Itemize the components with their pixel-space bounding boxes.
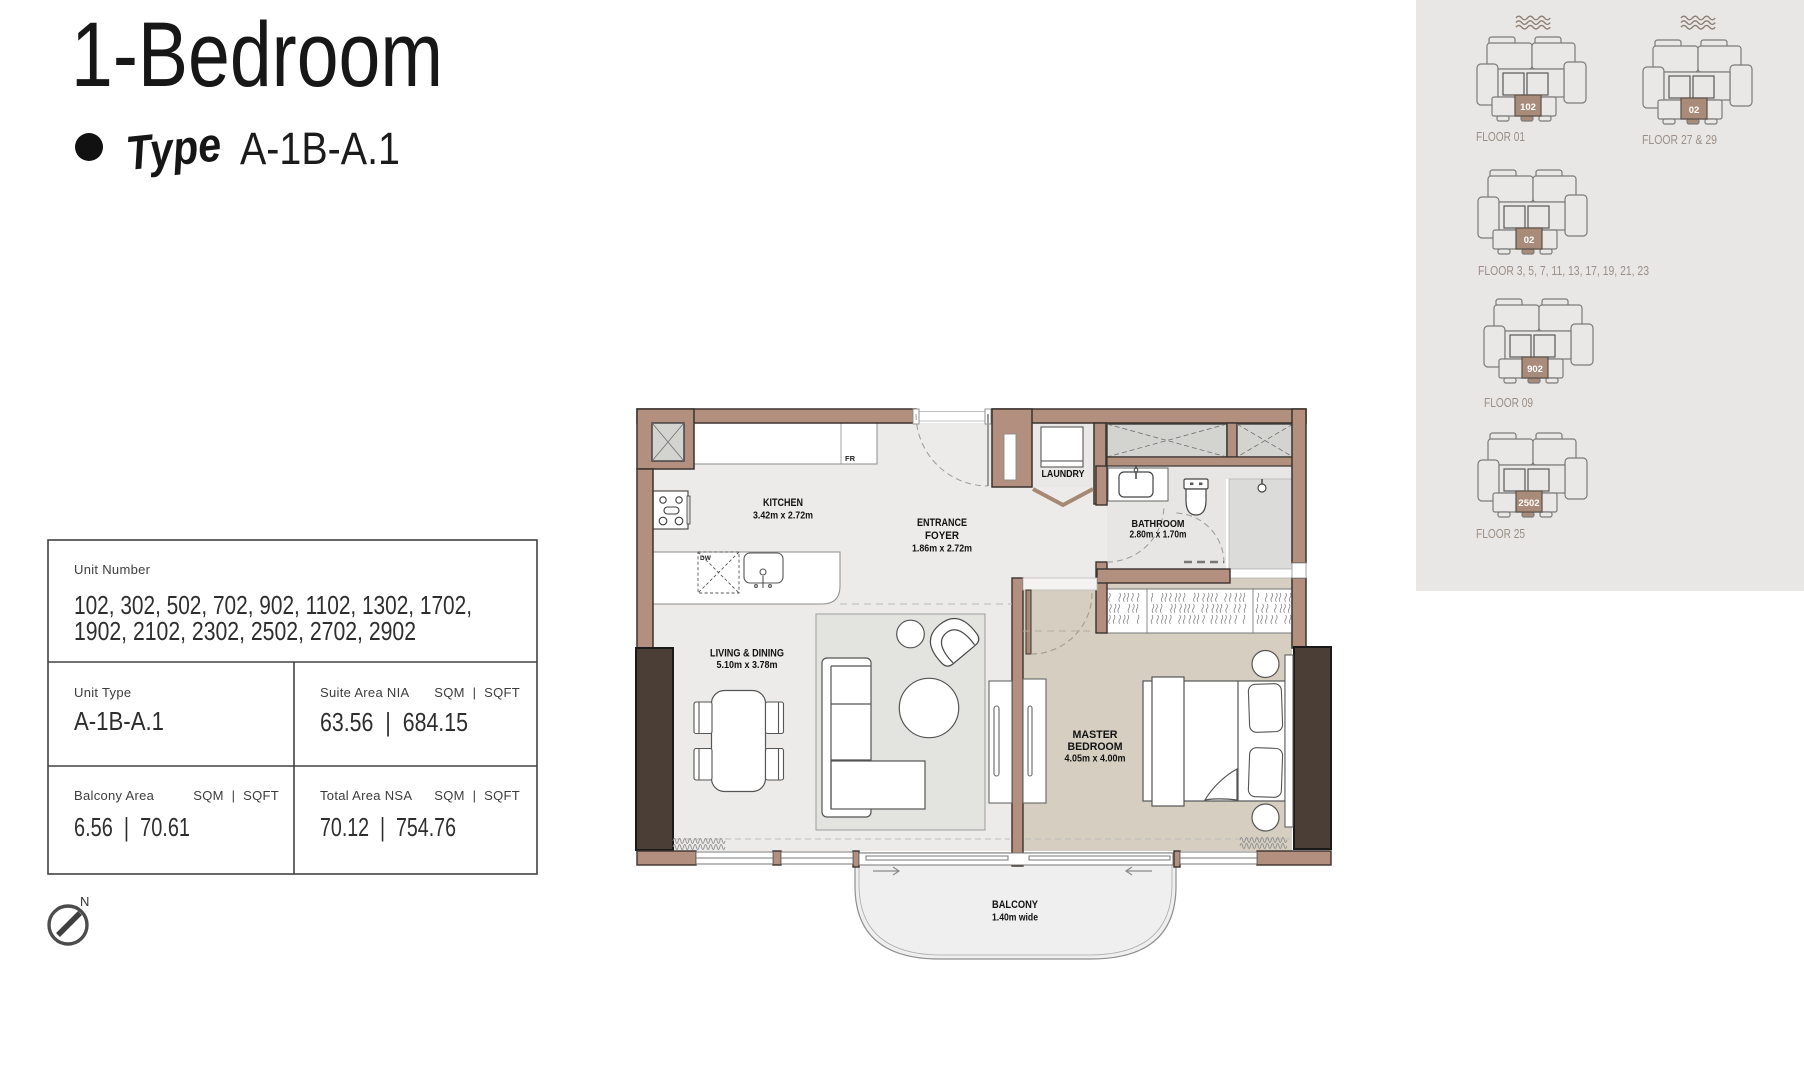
svg-text:70.12 | 754.76: 70.12 | 754.76 <box>320 812 456 842</box>
svg-text:LAUNDRY: LAUNDRY <box>1042 469 1085 480</box>
svg-text:1-Bedroom: 1-Bedroom <box>71 4 443 106</box>
svg-text:DW: DW <box>700 555 712 562</box>
svg-text:Balcony Area: Balcony Area <box>74 788 155 803</box>
svg-text:1.86m x 2.72m: 1.86m x 2.72m <box>912 543 972 555</box>
svg-text:2.80m x 1.70m: 2.80m x 1.70m <box>1130 530 1187 541</box>
svg-text:4.05m x 4.00m: 4.05m x 4.00m <box>1065 753 1126 765</box>
svg-text:LIVING & DINING: LIVING & DINING <box>710 648 784 660</box>
svg-text:FLOOR 01: FLOOR 01 <box>1476 130 1525 144</box>
svg-text:Type: Type <box>124 118 224 181</box>
svg-text:6.56 | 70.61: 6.56 | 70.61 <box>74 812 190 842</box>
svg-text:MASTER: MASTER <box>1073 729 1118 741</box>
svg-text:N: N <box>80 894 89 909</box>
svg-text:02: 02 <box>1689 105 1700 116</box>
svg-text:FOYER: FOYER <box>925 530 959 542</box>
svg-text:102: 102 <box>1520 102 1536 113</box>
svg-text:1902, 2102, 2302, 2502, 2702,: 1902, 2102, 2302, 2502, 2702, 2902 <box>74 616 416 646</box>
svg-text:A-1B-A.1: A-1B-A.1 <box>74 706 164 736</box>
svg-text:2502: 2502 <box>1518 498 1539 509</box>
svg-text:FLOOR 09: FLOOR 09 <box>1484 396 1533 410</box>
svg-text:Suite Area NIA: Suite Area NIA <box>320 685 409 700</box>
svg-text:FLOOR 27 & 29: FLOOR 27 & 29 <box>1642 133 1717 147</box>
svg-text:SQM | SQFT: SQM | SQFT <box>193 788 279 803</box>
svg-text:Total Area NSA: Total Area NSA <box>320 788 412 803</box>
svg-text:ENTRANCE: ENTRANCE <box>917 517 967 529</box>
svg-text:A-1B-A.1: A-1B-A.1 <box>240 123 400 174</box>
svg-text:902: 902 <box>1527 364 1543 375</box>
svg-text:BATHROOM: BATHROOM <box>1132 518 1185 530</box>
svg-text:02: 02 <box>1524 235 1535 246</box>
svg-text:BEDROOM: BEDROOM <box>1068 741 1123 753</box>
svg-text:63.56 | 684.15: 63.56 | 684.15 <box>320 707 468 737</box>
svg-text:Unit Type: Unit Type <box>74 685 131 700</box>
svg-text:FLOOR 3, 5, 7, 11, 13, 17, 19,: FLOOR 3, 5, 7, 11, 13, 17, 19, 21, 23 <box>1478 264 1649 278</box>
svg-text:SQM | SQFT: SQM | SQFT <box>434 788 520 803</box>
svg-text:Unit Number: Unit Number <box>74 562 151 577</box>
svg-text:3.42m x 2.72m: 3.42m x 2.72m <box>753 510 813 522</box>
svg-text:5.10m x 3.78m: 5.10m x 3.78m <box>717 659 778 671</box>
svg-text:FR: FR <box>845 454 856 463</box>
svg-text:FLOOR 25: FLOOR 25 <box>1476 527 1525 541</box>
svg-text:1.40m wide: 1.40m wide <box>992 912 1038 924</box>
svg-text:BALCONY: BALCONY <box>992 899 1039 911</box>
svg-text:SQM | SQFT: SQM | SQFT <box>434 685 520 700</box>
svg-text:KITCHEN: KITCHEN <box>763 497 803 509</box>
